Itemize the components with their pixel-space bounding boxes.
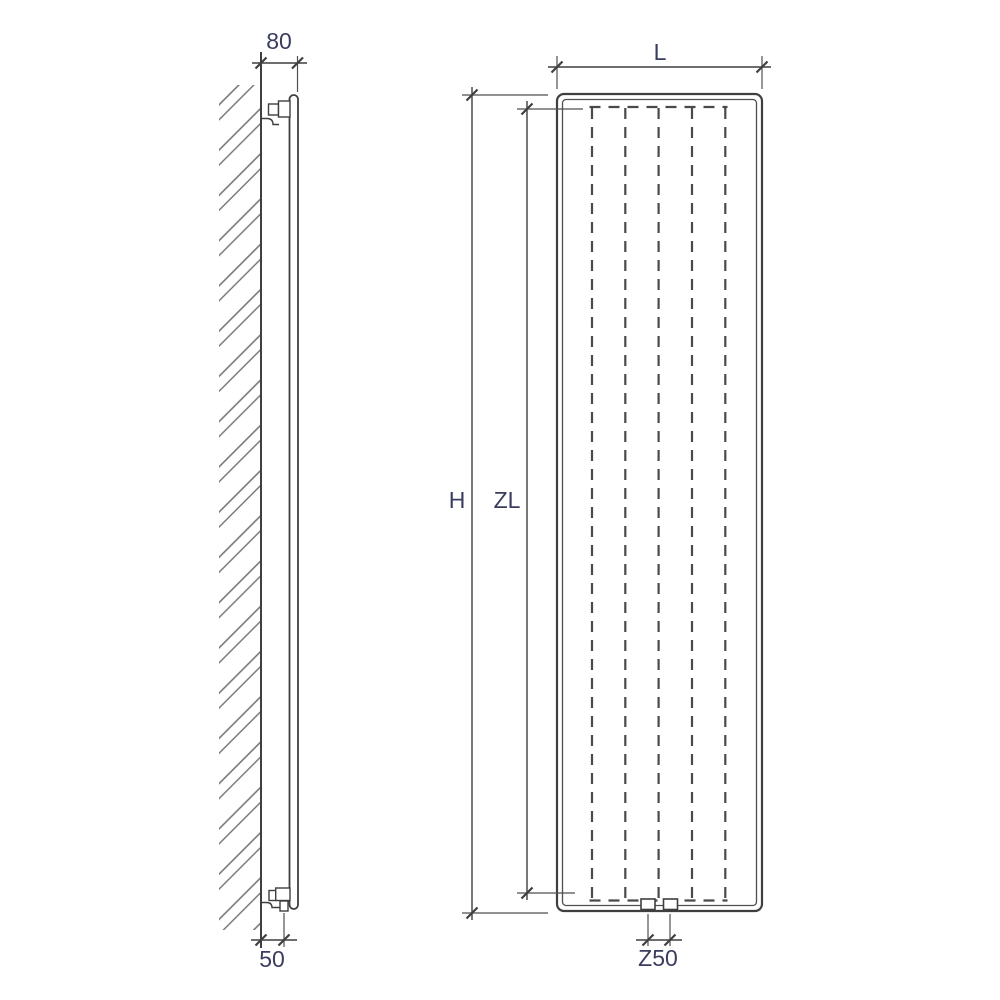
- wall-hatching: [219, 85, 260, 930]
- connection-port-left: [641, 899, 655, 910]
- mounting-bracket-bottom: [261, 888, 290, 911]
- dimension-L: L: [548, 39, 771, 89]
- bracket-hook: [261, 119, 279, 125]
- connection-port-right: [664, 899, 678, 910]
- bracket-wall-clip: [269, 104, 279, 115]
- dimension-label: H: [449, 487, 466, 513]
- dimension-Z50: Z50: [636, 914, 682, 971]
- bracket-arm: [276, 888, 290, 901]
- bracket-arm: [279, 101, 291, 117]
- bracket-hook: [261, 903, 280, 908]
- radiator-technical-drawing: 80 50: [0, 0, 1000, 1000]
- dimension-label: L: [654, 39, 667, 65]
- dimension-label: 50: [259, 946, 285, 972]
- bottom-connection-stub: [280, 901, 288, 911]
- dimension-label: 80: [266, 28, 292, 54]
- dimension-label: ZL: [494, 487, 521, 513]
- dimension-label: Z50: [638, 945, 678, 971]
- radiator-inner-frame: [563, 100, 757, 906]
- side-view: 80 50: [219, 28, 307, 972]
- bracket-wall-clip: [269, 891, 276, 901]
- drawing-svg: 80 50: [0, 0, 1000, 1000]
- radiator-side-profile: [290, 95, 299, 909]
- mounting-bracket-top: [261, 101, 290, 125]
- front-view: L H ZL Z50: [449, 39, 771, 971]
